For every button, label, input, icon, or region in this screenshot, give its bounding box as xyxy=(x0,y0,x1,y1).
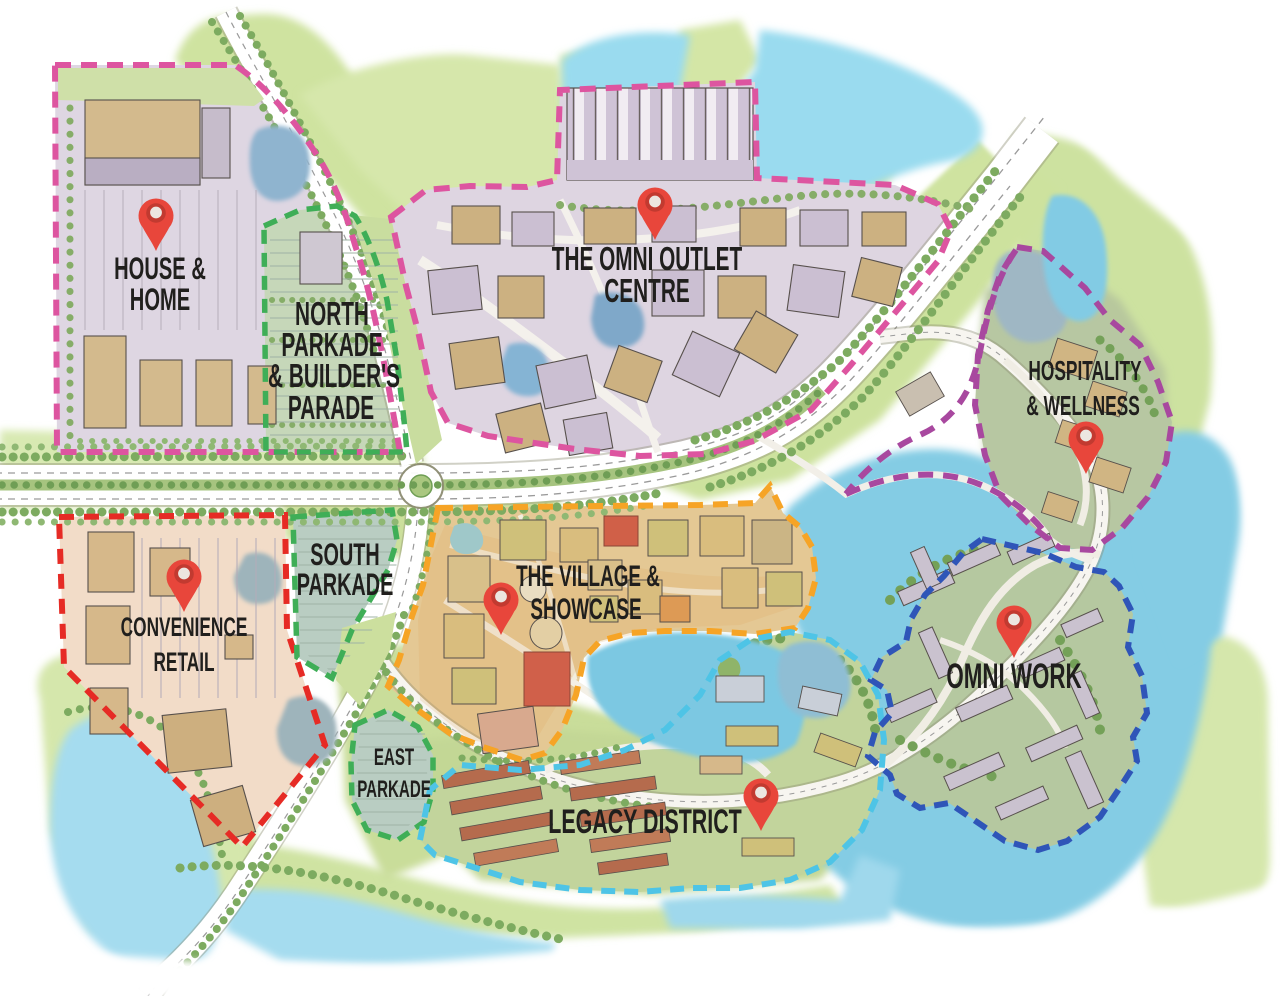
svg-text:CONVENIENCE: CONVENIENCE xyxy=(121,611,248,642)
svg-text:& WELLNESS: & WELLNESS xyxy=(1026,390,1140,421)
svg-text:PARKADE: PARKADE xyxy=(357,777,431,803)
svg-text:LEGACY DISTRICT: LEGACY DISTRICT xyxy=(548,803,742,841)
svg-text:PARKADE: PARKADE xyxy=(297,566,394,602)
svg-text:EAST: EAST xyxy=(374,745,415,771)
svg-text:CENTRE: CENTRE xyxy=(604,272,689,309)
svg-text:SHOWCASE: SHOWCASE xyxy=(530,593,641,627)
svg-text:PARADE: PARADE xyxy=(288,389,374,426)
svg-text:HOME: HOME xyxy=(130,281,190,317)
svg-text:OMNI WORK: OMNI WORK xyxy=(946,657,1082,696)
svg-text:HOSPITALITY: HOSPITALITY xyxy=(1028,355,1141,386)
svg-text:THE VILLAGE &: THE VILLAGE & xyxy=(516,560,660,594)
svg-text:RETAIL: RETAIL xyxy=(153,646,214,677)
